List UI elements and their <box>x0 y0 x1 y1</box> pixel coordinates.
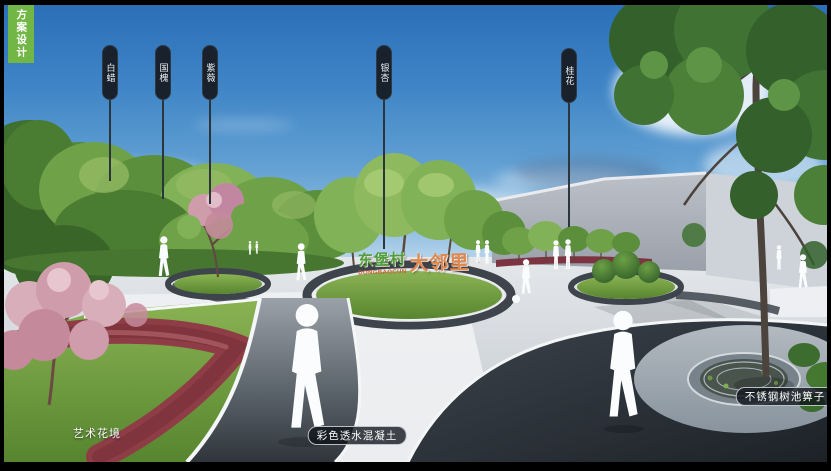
village-name-text: 东堡村 <box>358 248 407 270</box>
render-viewport: 方案设计 白蜡 国槐 紫薇 银杏 桂花 东堡村 DONGBAOCUN <box>4 5 827 462</box>
tree-sign-label: 国槐 <box>159 63 168 83</box>
scheme-design-label: 方案设计 <box>16 9 27 59</box>
sign-pole <box>209 100 211 204</box>
tree-sign-ziwei: 紫薇 <box>202 45 218 204</box>
landscape-render <box>4 5 827 462</box>
tree-sign-plate: 紫薇 <box>202 45 218 100</box>
tree-sign-guihua: 桂花 <box>561 48 577 227</box>
sign-pole <box>383 100 385 249</box>
village-name-block: 东堡村 DONGBAOCUN <box>358 248 407 276</box>
tree-sign-label: 紫薇 <box>206 63 215 83</box>
presentation-board: 方案设计 白蜡 国槐 紫薇 银杏 桂花 东堡村 DONGBAOCUN <box>0 0 831 471</box>
tree-sign-label: 银杏 <box>380 63 389 83</box>
tree-sign-plate: 白蜡 <box>102 45 118 100</box>
tree-sign-yinxing: 银杏 <box>376 45 392 249</box>
tree-sign-plate: 桂花 <box>561 48 577 103</box>
village-pinyin-text: DONGBAOCUN <box>358 269 406 276</box>
sign-suffix-text: 大邻里 <box>409 248 470 277</box>
tree-sign-guohuai: 国槐 <box>155 45 171 199</box>
annotation-flower-border: 艺术花境 <box>73 425 121 441</box>
village-entrance-sign: 东堡村 DONGBAOCUN 大邻里 <box>358 247 470 278</box>
tree-sign-label: 桂花 <box>565 66 574 86</box>
annotation-tree-grate: 不锈钢树池箅子 <box>736 387 827 406</box>
sign-pole <box>568 103 570 227</box>
scheme-design-tab: 方案设计 <box>8 5 34 63</box>
annotation-permeable-concrete: 彩色透水混凝土 <box>308 426 407 445</box>
ball <box>512 295 520 303</box>
tree-sign-plate: 银杏 <box>376 45 392 100</box>
sign-pole <box>109 100 111 181</box>
tree-sign-label: 白蜡 <box>106 63 115 83</box>
tree-sign-plate: 国槐 <box>155 45 171 100</box>
tree-sign-baila: 白蜡 <box>102 45 118 181</box>
sign-pole <box>162 100 164 199</box>
